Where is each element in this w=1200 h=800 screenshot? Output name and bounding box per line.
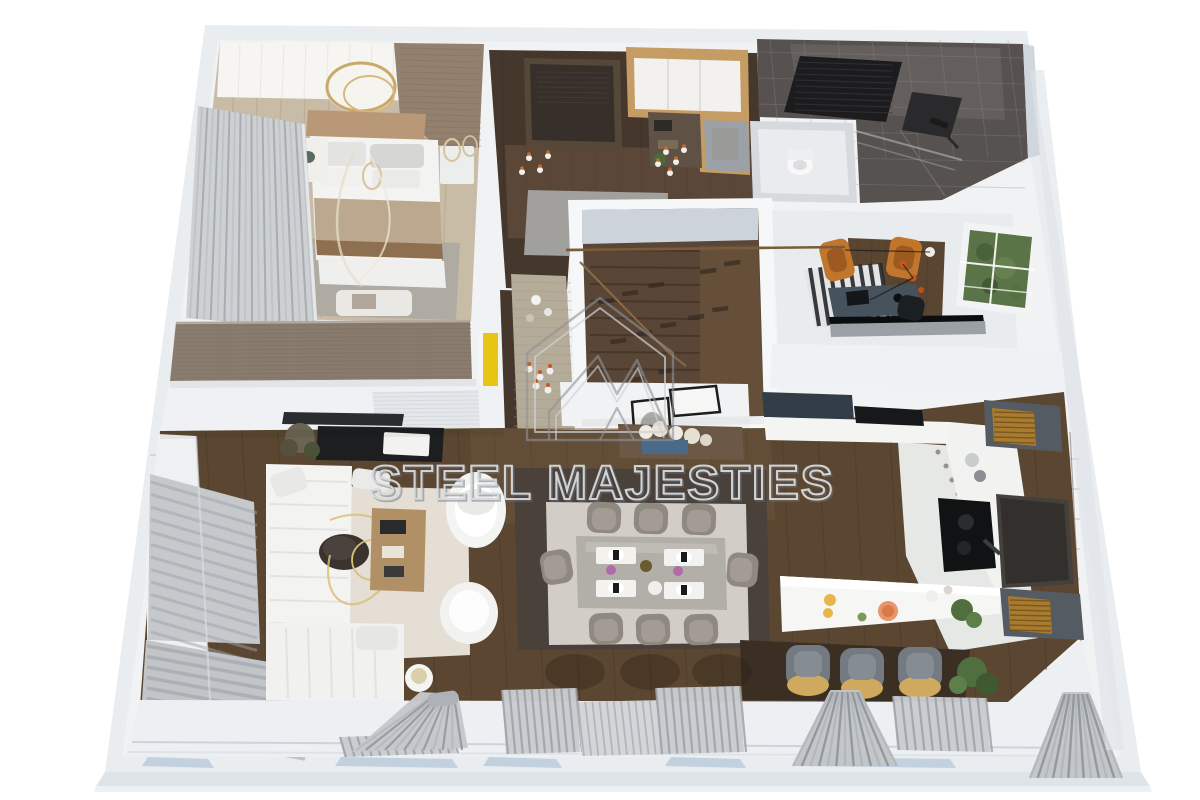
- svg-text:STEEL MAJESTIES: STEEL MAJESTIES: [370, 457, 835, 510]
